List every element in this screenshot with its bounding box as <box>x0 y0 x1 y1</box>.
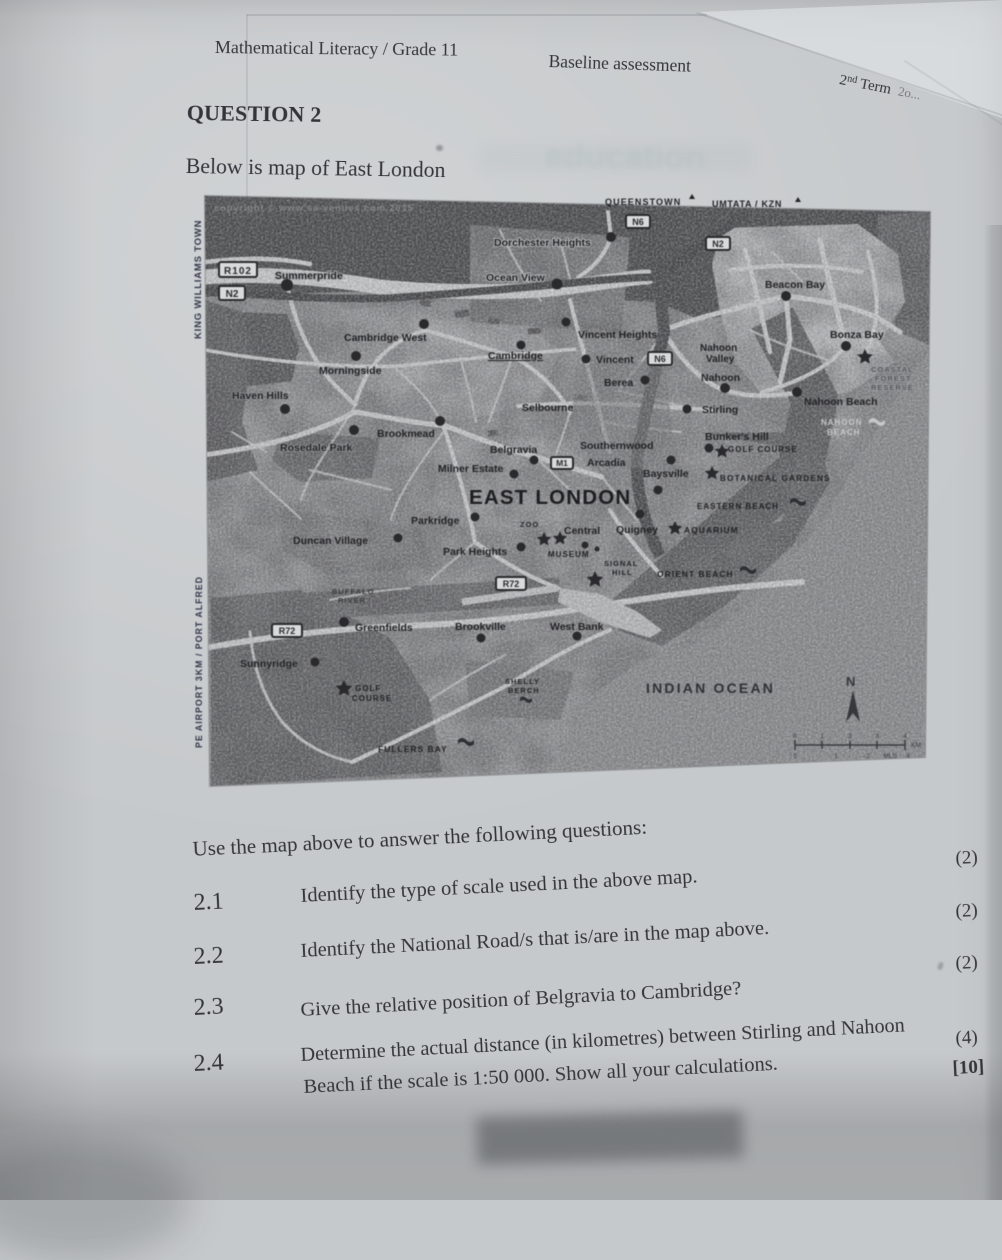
svg-text:GOLF: GOLF <box>355 684 381 693</box>
svg-text:2: 2 <box>848 733 852 740</box>
svg-text:BOTANICAL GARDENS: BOTANICAL GARDENS <box>720 474 831 483</box>
svg-text:0: 0 <box>793 753 797 760</box>
svg-text:Brookmead: Brookmead <box>377 428 435 440</box>
svg-text:Rosedale Park: Rosedale Park <box>280 442 353 454</box>
svg-text:BEACH: BEACH <box>827 428 860 437</box>
svg-text:Nahoon Beach: Nahoon Beach <box>804 396 878 408</box>
svg-text:Nahoon: Nahoon <box>700 343 737 354</box>
svg-text:Parkridge: Parkridge <box>411 515 460 527</box>
svg-text:Milner Estate: Milner Estate <box>438 463 504 475</box>
svg-text:N6: N6 <box>632 217 644 227</box>
svg-text:N6: N6 <box>654 354 666 364</box>
svg-text:Arcadia: Arcadia <box>587 457 626 469</box>
svg-text:INDIAN OCEAN: INDIAN OCEAN <box>646 680 775 696</box>
svg-text:SHELLY: SHELLY <box>505 677 540 686</box>
svg-text:Belgravia: Belgravia <box>490 444 537 456</box>
svg-text:Stirling: Stirling <box>702 404 738 416</box>
svg-text:AQUARIUM: AQUARIUM <box>684 525 739 535</box>
svg-text:BUFFALO: BUFFALO <box>332 587 374 596</box>
svg-text:QUEENSTOWN: QUEENSTOWN <box>605 197 681 207</box>
svg-text:EASTERN BEACH: EASTERN BEACH <box>697 502 779 511</box>
svg-text:COASTAL: COASTAL <box>871 365 914 374</box>
svg-text:N2: N2 <box>226 289 239 300</box>
svg-text:HILL: HILL <box>612 568 633 577</box>
svg-text:Selbourne: Selbourne <box>522 402 574 414</box>
svg-text:R102: R102 <box>224 266 252 277</box>
svg-text:Quigney: Quigney <box>616 524 658 536</box>
svg-text:FOREST: FOREST <box>875 374 911 383</box>
svg-text:Park Heights: Park Heights <box>443 546 507 558</box>
svg-text:2: 2 <box>866 753 870 760</box>
svg-text:Valley: Valley <box>706 354 735 365</box>
svg-text:MLS: MLS <box>883 753 897 760</box>
svg-text:N: N <box>846 674 855 689</box>
svg-text:Brookville: Brookville <box>455 621 506 633</box>
svg-text:R72: R72 <box>279 626 296 636</box>
svg-text:PE AIRPORT 3KM / PORT ALFRED: PE AIRPORT 3KM / PORT ALFRED <box>194 576 204 748</box>
svg-text:West Bank: West Bank <box>550 621 604 633</box>
svg-text:NAHOON: NAHOON <box>821 418 863 427</box>
svg-text:Berea: Berea <box>604 377 633 389</box>
svg-text:RESERVE: RESERVE <box>871 383 914 392</box>
svg-text:3: 3 <box>875 733 879 740</box>
svg-text:UMTATA / KZN: UMTATA / KZN <box>712 199 782 209</box>
svg-text:Southernwood: Southernwood <box>580 440 654 452</box>
svg-text:Vincent Heights: Vincent Heights <box>578 329 657 341</box>
svg-text:R72: R72 <box>503 579 520 589</box>
svg-text:SIGNAL: SIGNAL <box>604 559 638 568</box>
svg-text:Sunnyridge: Sunnyridge <box>240 658 298 670</box>
svg-text:Greenfields: Greenfields <box>355 622 413 634</box>
svg-text:N2: N2 <box>712 239 724 249</box>
svg-text:Central: Central <box>564 525 600 537</box>
svg-text:1: 1 <box>820 733 824 740</box>
svg-text:Haven Hills: Haven Hills <box>232 390 289 402</box>
svg-text:Baysville: Baysville <box>643 468 689 480</box>
svg-text:Bunker's Hill: Bunker's Hill <box>705 431 769 443</box>
svg-text:Bonza Bay: Bonza Bay <box>830 329 884 341</box>
svg-text:Morningside: Morningside <box>319 365 382 377</box>
svg-text:KM: KM <box>911 742 921 749</box>
svg-text:KING WILLIAMS TOWN: KING WILLIAMS TOWN <box>193 220 204 339</box>
svg-text:COURSE: COURSE <box>352 694 392 703</box>
svg-text:MUSEUM: MUSEUM <box>548 550 590 559</box>
svg-text:4: 4 <box>906 753 910 760</box>
svg-text:FULLERS BAY: FULLERS BAY <box>378 744 448 754</box>
svg-text:Ocean View: Ocean View <box>486 272 546 284</box>
svg-text:GOLF COURSE: GOLF COURSE <box>728 445 798 454</box>
svg-text:M1: M1 <box>556 458 568 468</box>
svg-text:ZOO: ZOO <box>520 520 539 529</box>
svg-text:4: 4 <box>903 733 907 740</box>
svg-text:Cambridge: Cambridge <box>488 350 543 362</box>
svg-text:Vincent: Vincent <box>596 354 634 366</box>
svg-text:EAST LONDON: EAST LONDON <box>469 486 631 509</box>
svg-text:Dorchester Heights: Dorchester Heights <box>494 237 591 249</box>
svg-text:BERCH: BERCH <box>508 686 540 695</box>
svg-text:Cambridge West: Cambridge West <box>344 332 427 344</box>
svg-text:copyright © www.sa-venues.com.: copyright © www.sa-venues.com.2015 <box>214 203 414 214</box>
svg-text:Nahoon: Nahoon <box>701 372 740 384</box>
svg-text:Beacon Bay: Beacon Bay <box>765 279 825 291</box>
svg-text:0: 0 <box>793 733 797 740</box>
svg-text:1: 1 <box>834 753 838 760</box>
svg-text:RIVER: RIVER <box>338 596 366 605</box>
svg-text:ORIENT BEACH: ORIENT BEACH <box>657 569 734 579</box>
svg-text:Duncan Village: Duncan Village <box>293 535 368 547</box>
